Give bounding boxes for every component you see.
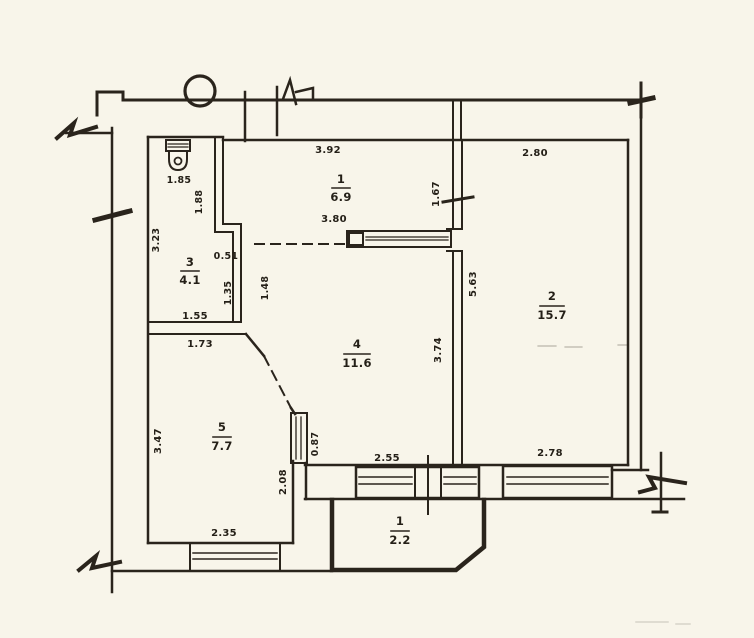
room-1-number: 1 (337, 172, 345, 186)
dim-room1-right: 1.67 (431, 181, 442, 207)
balcony-area: 2.2 (389, 533, 410, 547)
dim-room5-top: 1.73 (187, 339, 213, 350)
room-3-number: 3 (186, 255, 194, 269)
room-labels: 1 6.9 2 15.7 3 4.1 4 11.6 5 7.7 1 2.2 (179, 172, 566, 547)
wall-break-icon-bottom-left (79, 556, 120, 570)
window-room5-south (190, 543, 280, 571)
room-1-label: 1 6.9 (330, 172, 351, 204)
window-room4-south (356, 467, 479, 498)
window-room1-sill (347, 231, 451, 247)
dim-room3-step: 0.51 (214, 251, 239, 262)
room-1-area: 6.9 (330, 190, 351, 204)
outer-walls (66, 92, 684, 592)
scan-marks (538, 345, 628, 347)
room-2-area: 15.7 (537, 308, 567, 322)
dim-room5-bottom: 2.35 (211, 528, 237, 539)
room-5-number: 5 (218, 420, 226, 434)
floor-plan: 1.85 3.92 3.80 2.80 2.78 0.51 1.55 1.73 … (0, 0, 754, 638)
dim-room3-right-lower: 1.35 (223, 281, 234, 306)
dashed-partition-lines (255, 244, 344, 408)
wall-break-icon-left (57, 123, 96, 138)
dim-room2-bottom: 2.78 (537, 448, 563, 459)
toilet-icon (166, 140, 190, 170)
scan-smudge (636, 622, 690, 624)
dim-room1-bottom: 3.80 (321, 214, 347, 225)
dim-room4-left: 1.48 (260, 276, 271, 301)
dim-room5-right: 2.08 (278, 469, 289, 495)
dim-room4-bottom: 2.55 (374, 453, 400, 464)
dim-room3-left: 3.23 (151, 228, 162, 253)
dim-room4-right: 3.74 (433, 337, 444, 363)
room-3-label: 3 4.1 (179, 255, 200, 287)
wall-axis-ticks (95, 83, 653, 514)
window-room2-south (503, 466, 612, 498)
room-2-label: 2 15.7 (537, 289, 567, 322)
balcony-label: 1 2.2 (389, 514, 410, 547)
dim-room3-right-upper: 1.88 (194, 190, 205, 215)
balcony-number: 1 (396, 514, 404, 528)
scanned-floor-plan-page: 1.85 3.92 3.80 2.80 2.78 0.51 1.55 1.73 … (0, 0, 754, 638)
room-2-number: 2 (548, 289, 556, 303)
room-5-area: 7.7 (211, 439, 232, 453)
room-4-area: 11.6 (342, 356, 372, 370)
dim-room4-west-window: 0.87 (310, 432, 321, 457)
dim-room1-top: 3.92 (315, 145, 341, 156)
window-room4-west (291, 413, 307, 463)
room-3-area: 4.1 (179, 273, 200, 287)
dim-room2-left: 5.63 (468, 271, 479, 297)
dim-room5-left: 3.47 (153, 428, 164, 454)
room-4-number: 4 (353, 337, 361, 351)
room-5-label: 5 7.7 (211, 420, 232, 453)
dim-room3-bottom: 1.55 (182, 311, 208, 322)
room-4-label: 4 11.6 (342, 337, 372, 370)
dim-room2-top: 2.80 (522, 148, 548, 159)
dim-toilet-width: 1.85 (167, 175, 192, 186)
wall-break-icon-right (640, 477, 685, 492)
